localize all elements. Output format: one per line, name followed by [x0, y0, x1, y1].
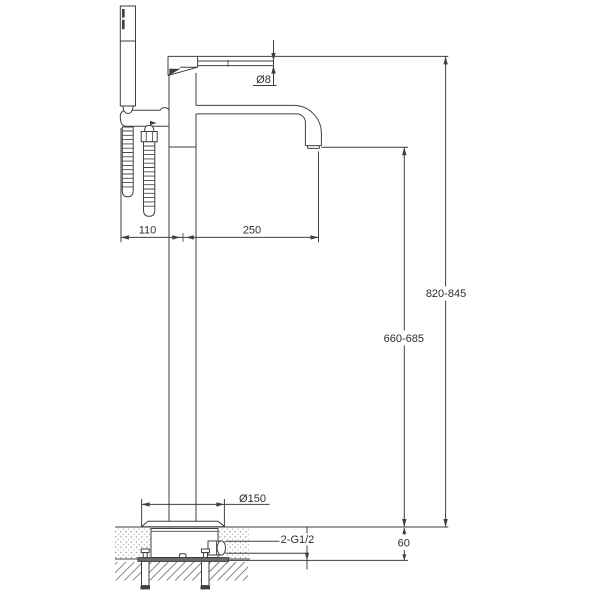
dim-label-base-diameter: Ø150 — [239, 493, 266, 505]
plate-boss — [180, 554, 187, 558]
hose-nut-dome — [145, 125, 154, 131]
dim-label-floor-depth: 60 — [398, 538, 410, 550]
spout-outlet — [305, 146, 321, 149]
dim-handle-diameter: Ø8 — [253, 40, 277, 86]
drawing-canvas: Ø8 110 250 820-845 660-685 — [0, 0, 600, 600]
arrowhead-up — [402, 528, 406, 534]
arrowhead-right — [311, 235, 319, 239]
dim-label-shower-offset: 110 — [139, 224, 157, 236]
floor-flange — [142, 521, 226, 527]
arrowhead-right — [216, 502, 224, 506]
arrowhead-down — [271, 53, 275, 61]
arrowhead-up — [443, 56, 447, 64]
faucet-spout — [196, 105, 321, 148]
faucet-handle-lever — [198, 60, 274, 67]
dim-floor-depth: 60 — [229, 528, 410, 561]
faucet-cap — [168, 56, 198, 75]
hose-ribs — [144, 146, 155, 206]
dim-label-inlet-connections: 2-G1/2 — [281, 534, 315, 546]
dim-label-spout-height: 660-685 — [384, 333, 424, 345]
arrowhead-down — [402, 554, 406, 560]
dim-label-overall-height: 820-845 — [426, 288, 466, 300]
anchor-bolt-left — [141, 561, 151, 589]
dim-label-spout-reach: 250 — [243, 224, 261, 236]
arrowhead-down — [443, 519, 447, 527]
ground-hatch — [115, 562, 248, 581]
wand-spray-mark — [122, 9, 125, 18]
faucet-technical-drawing: Ø8 110 250 820-845 660-685 — [0, 0, 600, 600]
arrowhead-right — [172, 235, 180, 239]
flex-hose-left — [122, 127, 133, 197]
wand-spray-mark — [122, 20, 125, 29]
arrowhead-left — [121, 235, 129, 239]
inlet-fitting-cap — [217, 541, 225, 555]
arrowhead-left — [186, 235, 194, 239]
flex-hose-right — [141, 125, 157, 216]
arrowhead-up — [271, 66, 275, 74]
arrowhead-up — [402, 147, 406, 155]
faucet-column — [169, 73, 196, 521]
base-plate — [138, 558, 229, 562]
arrowhead-left — [142, 502, 150, 506]
hand-shower-wand — [120, 6, 135, 113]
dim-label-handle-diameter: Ø8 — [256, 74, 271, 86]
arrowhead-down — [402, 519, 406, 527]
dim-spout-height: 660-685 — [321, 147, 424, 527]
hose-nut — [141, 132, 157, 142]
anchor-bolt-right — [201, 561, 211, 589]
wand-tip — [123, 106, 133, 113]
arrowhead-down — [305, 553, 309, 561]
